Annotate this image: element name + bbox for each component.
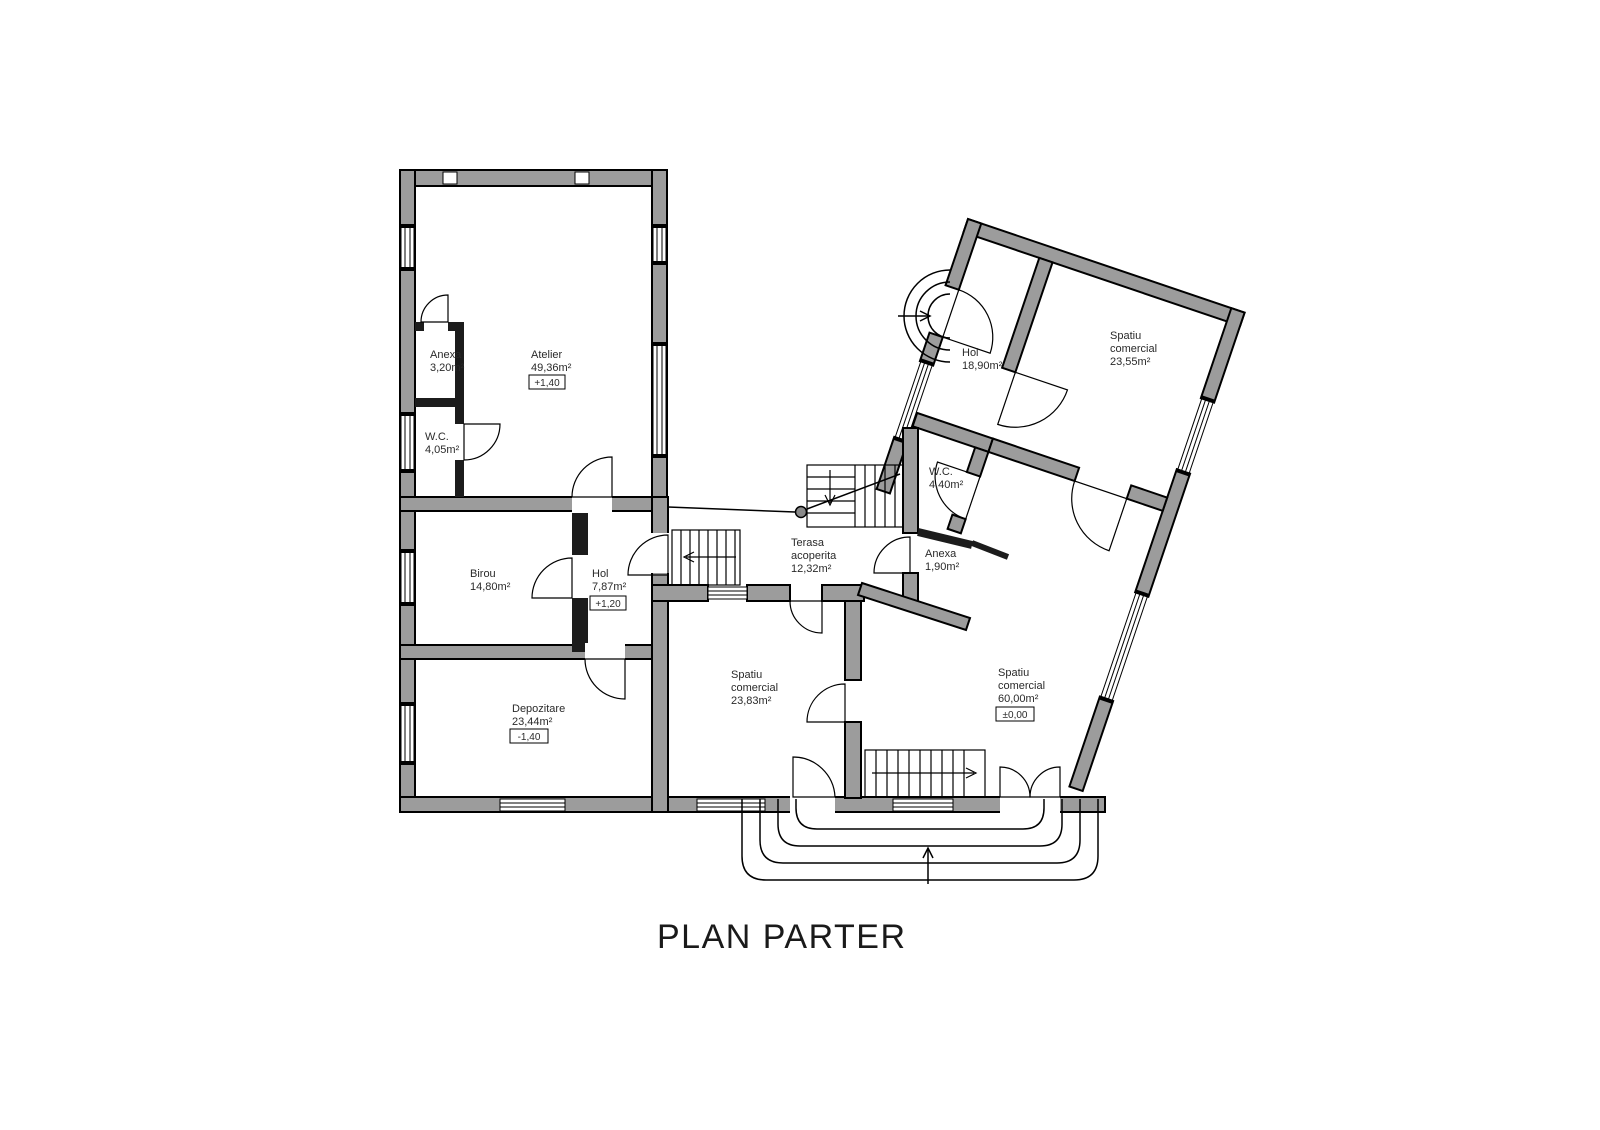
room-area: 4,40m² [929, 479, 964, 491]
room-name: Terasa [791, 537, 825, 549]
wall-rot-right-c [1069, 696, 1113, 790]
room-area: 14,80m² [470, 581, 511, 593]
partition-birou-hol-a [572, 511, 588, 555]
elevation-value: +1,40 [534, 378, 560, 389]
room-area: 1,90m² [925, 561, 960, 573]
wall-junction-a [903, 428, 918, 533]
door-arc-hol-sp1 [998, 372, 1068, 442]
room-label-anexa-left: Anexa 3,20m² [430, 349, 465, 374]
door-opening [585, 643, 625, 661]
terasa-edge-line-left [668, 507, 795, 512]
room-label-spatiu-comercial-1: Spatiu comercial 23,55m² [1110, 330, 1157, 368]
plan-title: PLAN PARTER [657, 918, 907, 956]
window [400, 226, 415, 269]
wall-rot-top [964, 219, 1245, 326]
room-name: comercial [998, 680, 1045, 692]
room-label-spatiu-comercial-2: Spatiu comercial 23,83m² [731, 669, 778, 707]
window [400, 414, 415, 471]
window [697, 799, 765, 811]
partition-wc-right-a [967, 447, 989, 476]
partition-anexa-wc-horizontal [415, 398, 464, 407]
window [652, 344, 667, 456]
window [500, 799, 565, 811]
room-label-spatiu-comercial-3: Spatiu comercial 60,00m² ±0,00 [996, 667, 1045, 721]
room-area: 23,83m² [731, 695, 772, 707]
wall-rot-right-b [1135, 469, 1190, 597]
room-area: 49,36m² [531, 362, 572, 374]
door-arc-sp2-entrance [793, 757, 835, 797]
room-name: comercial [731, 682, 778, 694]
room-label-anexa-right: Anexa 1,90m² [925, 548, 960, 573]
room-area: 3,20m² [430, 362, 465, 374]
door-arc-wc-left [464, 424, 500, 460]
wall-rot-right-a [1201, 308, 1245, 402]
wall-top [400, 170, 667, 186]
wall-wc-anexa [918, 532, 972, 545]
room-area: 4,05m² [425, 444, 460, 456]
wall-sp2-top-b [747, 585, 790, 601]
door-arc-entrance-hol [943, 290, 1006, 353]
room-label-terasa: Terasa acoperita 12,32m² [791, 537, 837, 575]
partition-hol-sp1 [1002, 258, 1052, 372]
door-arc-depozitare [585, 659, 625, 699]
room-name: Hol [592, 568, 609, 580]
room-name: Anexa [430, 349, 462, 361]
window [1100, 591, 1149, 702]
room-labels: Anexa 3,20m² Atelier 49,36m² +1,40 W.C. … [425, 330, 1157, 743]
door-arc-sp2-sp3 [807, 684, 845, 722]
elevation-value: +1,20 [595, 599, 621, 610]
wall-anexa-right-stub [972, 543, 1008, 557]
room-name: Atelier [531, 349, 563, 361]
room-name: W.C. [929, 466, 953, 478]
room-label-birou: Birou 14,80m² [470, 568, 511, 593]
wall-sp2-sp3-a [845, 601, 861, 680]
floor-plan-svg: Anexa 3,20m² Atelier 49,36m² +1,40 W.C. … [0, 0, 1600, 1130]
door-arc-sp1-sp3 [1057, 481, 1127, 551]
door-arc-atelier [572, 457, 612, 497]
room-name: Spatiu [998, 667, 1029, 679]
room-area: 12,32m² [791, 563, 832, 575]
elevation-value: -1,40 [518, 732, 541, 743]
room-area: 7,87m² [592, 581, 627, 593]
wall-birou-depozitare [400, 645, 667, 659]
partition-sp1-sp3-a [988, 439, 1079, 481]
room-name: Spatiu [731, 669, 762, 681]
partition-sp1-sp3-b [1127, 485, 1167, 510]
room-area: 60,00m² [998, 693, 1039, 705]
wall-right-atelier [652, 170, 667, 511]
room-area: 23,44m² [512, 716, 553, 728]
rotated-wing [806, 219, 1244, 791]
window [708, 587, 747, 599]
door-arc-birou [532, 558, 572, 598]
window [652, 226, 667, 263]
window [1176, 397, 1214, 474]
door-opening [1000, 795, 1060, 815]
window [400, 704, 415, 763]
room-name: W.C. [425, 431, 449, 443]
wall-rot-left-a [946, 219, 982, 290]
wall-atelier-birou [400, 497, 667, 511]
room-area: 18,90m² [962, 360, 1003, 372]
door-opening [572, 495, 612, 513]
room-label-hol-left: Hol 7,87m² +1,20 [590, 568, 627, 610]
wall-sp2-sp3-b [845, 722, 861, 798]
door-arc-double-right [1030, 767, 1060, 797]
room-name: Spatiu [1110, 330, 1141, 342]
room-name: Hol [962, 347, 979, 359]
column [796, 507, 807, 518]
partition-wc-right-b [948, 515, 966, 534]
door-arc-anexa-right [874, 537, 910, 573]
room-name: acoperita [791, 550, 837, 562]
door-opening [650, 533, 670, 573]
door-arc-double-left [1000, 767, 1030, 797]
room-name: Anexa [925, 548, 957, 560]
wall-sp2-top-a [652, 585, 708, 601]
central-block-walls [652, 585, 953, 811]
partition-hol-wc [913, 413, 993, 452]
stair-terasa-left [672, 530, 740, 585]
door-arc-sp2-terasa [790, 601, 822, 633]
window [893, 799, 953, 811]
floor-plan-page: Anexa 3,20m² Atelier 49,36m² +1,40 W.C. … [0, 0, 1600, 1130]
room-name: Depozitare [512, 703, 565, 715]
window [400, 551, 415, 604]
room-label-depozitare: Depozitare 23,44m² -1,40 [510, 703, 565, 743]
room-name: comercial [1110, 343, 1157, 355]
window [575, 172, 589, 184]
window [443, 172, 457, 184]
room-area: 23,55m² [1110, 356, 1151, 368]
stair-front [865, 750, 985, 797]
door-arc-anexa-left [421, 295, 448, 322]
room-label-atelier: Atelier 49,36m² +1,40 [529, 349, 572, 389]
elevation-value: ±0,00 [1003, 710, 1028, 721]
room-name: Birou [470, 568, 496, 580]
